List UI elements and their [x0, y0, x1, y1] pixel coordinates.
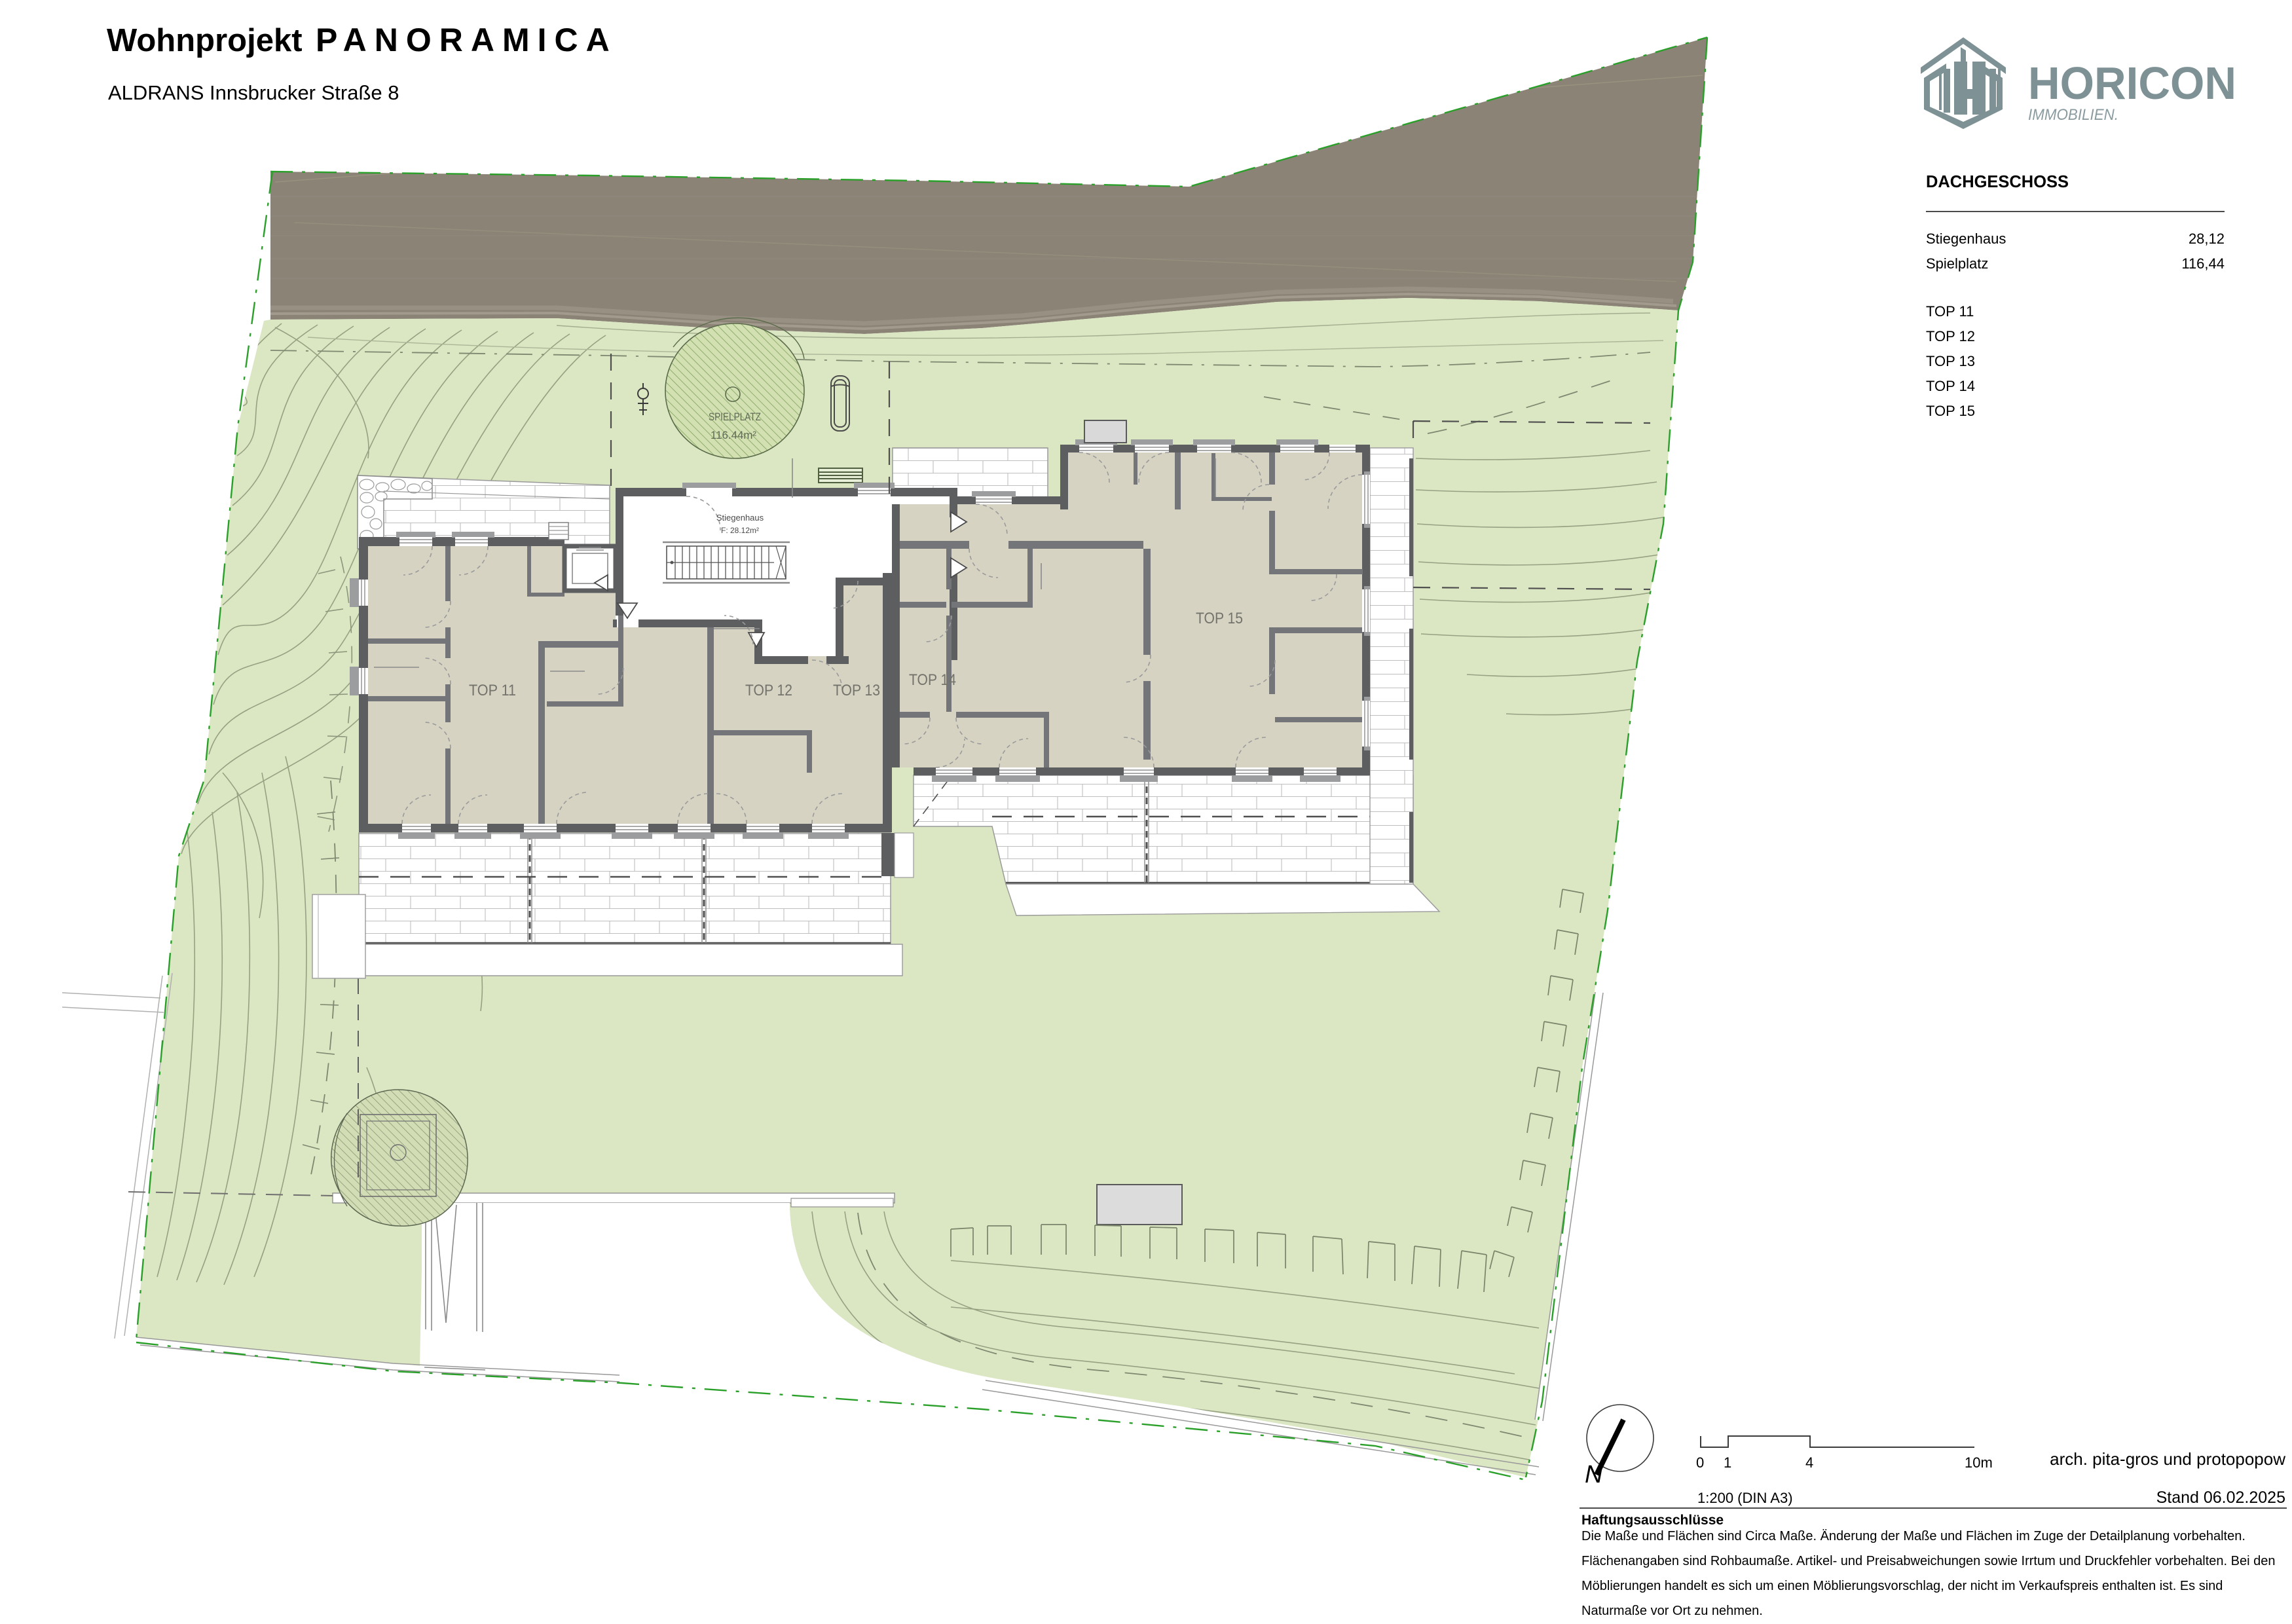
- svg-text:TOP 13: TOP 13: [1926, 353, 1975, 369]
- svg-text:Spielplatz: Spielplatz: [1926, 255, 1988, 272]
- svg-text:Stiegenhaus: Stiegenhaus: [716, 513, 764, 523]
- svg-text:TOP 15: TOP 15: [1196, 610, 1243, 627]
- svg-text:DACHGESCHOSS: DACHGESCHOSS: [1926, 172, 2069, 191]
- svg-text:TOP 11: TOP 11: [1926, 303, 1974, 320]
- svg-text:Wohnprojekt: Wohnprojekt: [107, 23, 303, 58]
- svg-text:TOP 15: TOP 15: [1926, 403, 1975, 419]
- svg-text:N: N: [1585, 1461, 1603, 1488]
- svg-text:0: 0: [1696, 1454, 1704, 1471]
- svg-text:TOP 12: TOP 12: [745, 682, 792, 699]
- svg-text:10m: 10m: [1965, 1454, 1993, 1471]
- svg-text:Haftungsausschlüsse: Haftungsausschlüsse: [1581, 1513, 1724, 1528]
- svg-text:Flächenangaben sind Rohbaumaße: Flächenangaben sind Rohbaumaße. Artikel-…: [1581, 1554, 2276, 1568]
- svg-text:1: 1: [1724, 1454, 1731, 1471]
- svg-text:SPIELPLATZ: SPIELPLATZ: [709, 411, 761, 423]
- svg-text:4: 4: [1805, 1454, 1813, 1471]
- svg-text:TOP 11: TOP 11: [469, 682, 516, 699]
- svg-text:TOP 14: TOP 14: [909, 671, 956, 689]
- svg-text:TOP 12: TOP 12: [1926, 328, 1975, 344]
- svg-text:Naturmaße vor Ort zu nehmen.: Naturmaße vor Ort zu nehmen.: [1581, 1604, 1763, 1618]
- svg-text:ALDRANS Innsbrucker Straße 8: ALDRANS Innsbrucker Straße 8: [108, 81, 399, 104]
- svg-text:arch. pita-gros und protopopow: arch. pita-gros und protopopow: [2050, 1449, 2285, 1469]
- svg-text:Stand 06.02.2025: Stand 06.02.2025: [2156, 1488, 2285, 1507]
- svg-text:TOP 13: TOP 13: [833, 682, 880, 699]
- svg-text:1:200 (DIN A3): 1:200 (DIN A3): [1697, 1490, 1793, 1506]
- svg-text:IMMOBILIEN.: IMMOBILIEN.: [2028, 106, 2118, 124]
- svg-text:28,12: 28,12: [2189, 231, 2225, 247]
- svg-text:116,44: 116,44: [2181, 255, 2225, 272]
- svg-text:116.44m²: 116.44m²: [711, 429, 756, 441]
- svg-text:F: 28.12m²: F: 28.12m²: [721, 526, 759, 535]
- svg-text:PANORAMICA: PANORAMICA: [316, 22, 618, 58]
- svg-text:TOP 14: TOP 14: [1926, 378, 1975, 394]
- svg-text:Möblierungen handelt es sich u: Möblierungen handelt es sich um einen Mö…: [1581, 1579, 2223, 1593]
- svg-text:Die Maße und Flächen sind Circ: Die Maße und Flächen sind Circa Maße. Än…: [1581, 1529, 2246, 1543]
- svg-text:HORICON: HORICON: [2028, 58, 2236, 109]
- svg-text:Stiegenhaus: Stiegenhaus: [1926, 231, 2006, 247]
